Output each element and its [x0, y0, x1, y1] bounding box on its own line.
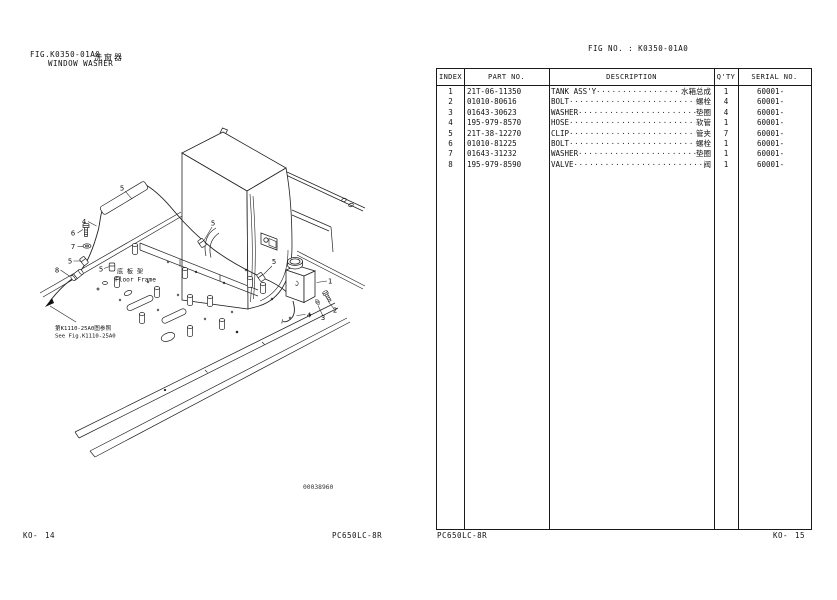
header-description: DESCRIPTION	[549, 73, 714, 81]
table-row: 8 195-979-8590 VALVE阀 1 60001-	[437, 160, 811, 170]
cell-part-no: 195-979-8590	[464, 160, 549, 170]
cell-serial: 60001-	[738, 87, 811, 97]
cell-part-no: 01643-31232	[464, 149, 549, 159]
footer-left-page-number: 14	[45, 531, 55, 540]
desc-en: CLIP	[549, 129, 569, 139]
cell-part-no: 21T-38-12270	[464, 129, 549, 139]
washer-tank	[286, 258, 315, 303]
leader-dots	[569, 129, 696, 139]
callout: 5	[272, 257, 276, 266]
table-header-row: INDEX PART NO. DESCRIPTION Q'TY SERIAL N…	[437, 69, 811, 86]
cell-description: VALVE阀	[549, 160, 714, 170]
cell-index: 3	[437, 108, 464, 118]
table-row: 3 01643-30623 WASHER垫圈 4 60001-	[437, 108, 811, 118]
table-body: 1 21T-06-11350 TANK ASS'Y水箱总成 1 60001- 2…	[437, 87, 811, 170]
desc-en: BOLT	[549, 97, 569, 107]
table-row: 5 21T-38-12270 CLIP管夹 7 60001-	[437, 129, 811, 139]
cell-index: 4	[437, 118, 464, 128]
parts-diagram: 5 4 6 7 5 8 5 5 5 1 2 3 4 底 板 架 Floor Fr…	[0, 0, 430, 560]
callout: 8	[55, 266, 59, 275]
cell-serial: 60001-	[738, 149, 811, 159]
leader-dots	[574, 160, 704, 170]
header-part-no: PART NO.	[464, 73, 549, 81]
cell-part-no: 01643-30623	[464, 108, 549, 118]
see-fig-note-zh: 第K1110-25A0图参照	[55, 324, 111, 332]
right-page-header: FIG NO. : K0350-01A0	[588, 44, 688, 53]
callout: 4	[82, 217, 86, 226]
floor-frame-label-zh: 底 板 架	[117, 268, 143, 276]
desc-zh: 垫圈	[696, 149, 714, 159]
leader-dots	[569, 97, 696, 107]
header-serial-no: SERIAL NO.	[738, 73, 811, 81]
header-index: INDEX	[437, 73, 464, 81]
tank-hose-4	[282, 301, 295, 324]
cell-qty: 1	[714, 160, 738, 170]
callout: 1	[328, 277, 332, 286]
cell-index: 1	[437, 87, 464, 97]
desc-zh: 垫圈	[696, 108, 714, 118]
leader-dots	[578, 149, 696, 159]
cell-part-no: 195-979-8570	[464, 118, 549, 128]
cell-qty: 7	[714, 129, 738, 139]
washer-glyph-3	[314, 299, 320, 306]
header-qty: Q'TY	[714, 73, 738, 81]
table-row: 1 21T-06-11350 TANK ASS'Y水箱总成 1 60001-	[437, 87, 811, 97]
cell-part-no: 21T-06-11350	[464, 87, 549, 97]
table-row: 4 195-979-8570 HOSE软管 1 60001-	[437, 118, 811, 128]
cell-part-no: 01010-80616	[464, 97, 549, 107]
cell-description: WASHER垫圈	[549, 108, 714, 118]
cell-index: 2	[437, 97, 464, 107]
cell-qty: 1	[714, 139, 738, 149]
cell-qty: 1	[714, 118, 738, 128]
footer-right-page-number: 15	[795, 531, 805, 540]
desc-en: TANK ASS'Y	[549, 87, 596, 97]
footer-right-model: PC650LC-8R	[437, 531, 487, 540]
callout: 4	[307, 311, 311, 320]
leader-dots	[569, 118, 696, 128]
cell-qty: 4	[714, 97, 738, 107]
valve-glyph	[70, 269, 84, 282]
desc-en: VALVE	[549, 160, 574, 170]
cell-serial: 60001-	[738, 108, 811, 118]
table-row: 7 01643-31232 WASHER垫圈 1 60001-	[437, 149, 811, 159]
cell-index: 7	[437, 149, 464, 159]
desc-zh: 软管	[696, 118, 714, 128]
cell-qty: 1	[714, 149, 738, 159]
callout: 3	[321, 313, 325, 322]
footer-left-model: PC650LC-8R	[332, 531, 382, 540]
bolt-glyph-2	[322, 290, 332, 302]
desc-en: BOLT	[549, 139, 569, 149]
callout: 5	[68, 257, 72, 266]
callout: 5	[120, 184, 124, 193]
desc-zh: 水箱总成	[681, 87, 714, 97]
cell-description: TANK ASS'Y水箱总成	[549, 87, 714, 97]
callout: 2	[333, 306, 337, 315]
callout: 7	[71, 242, 75, 251]
cell-description: WASHER垫圈	[549, 149, 714, 159]
footer-right-code: KO-	[773, 531, 788, 540]
table-row: 6 01010-81225 BOLT螺栓 1 60001-	[437, 139, 811, 149]
desc-zh: 螺栓	[696, 139, 714, 149]
hose-continuation-arrow	[45, 298, 54, 307]
drawing-number: 00038960	[303, 484, 334, 491]
cell-serial: 60001-	[738, 97, 811, 107]
cell-description: BOLT螺栓	[549, 139, 714, 149]
leader-dots	[596, 87, 681, 97]
floor-frame-label-en: Floor Frame	[115, 277, 156, 284]
washer-glyph-7	[83, 244, 91, 248]
cell-description: HOSE软管	[549, 118, 714, 128]
see-fig-leader	[50, 306, 76, 322]
cell-serial: 60001-	[738, 118, 811, 128]
desc-zh: 螺栓	[696, 97, 714, 107]
parts-table: INDEX PART NO. DESCRIPTION Q'TY SERIAL N…	[436, 68, 812, 530]
desc-zh: 管夹	[696, 129, 714, 139]
cell-qty: 1	[714, 87, 738, 97]
desc-zh: 阀	[704, 160, 715, 170]
cell-index: 8	[437, 160, 464, 170]
see-fig-note-en: See Fig.K1110-25A0	[55, 334, 116, 340]
leader-dots	[569, 139, 696, 149]
desc-en: WASHER	[549, 149, 578, 159]
callout: 6	[71, 229, 75, 238]
cell-serial: 60001-	[738, 129, 811, 139]
cell-serial: 60001-	[738, 139, 811, 149]
footer-left-code: KO-	[23, 531, 38, 540]
cell-index: 6	[437, 139, 464, 149]
cell-description: BOLT螺栓	[549, 97, 714, 107]
desc-en: HOSE	[549, 118, 569, 128]
leader-dots	[578, 108, 696, 118]
table-row: 2 01010-80616 BOLT螺栓 4 60001-	[437, 97, 811, 107]
cell-index: 5	[437, 129, 464, 139]
cell-serial: 60001-	[738, 160, 811, 170]
cell-description: CLIP管夹	[549, 129, 714, 139]
cell-part-no: 01010-81225	[464, 139, 549, 149]
callout: 5	[211, 219, 215, 228]
cell-qty: 4	[714, 108, 738, 118]
desc-en: WASHER	[549, 108, 578, 118]
callout: 5	[99, 265, 103, 274]
